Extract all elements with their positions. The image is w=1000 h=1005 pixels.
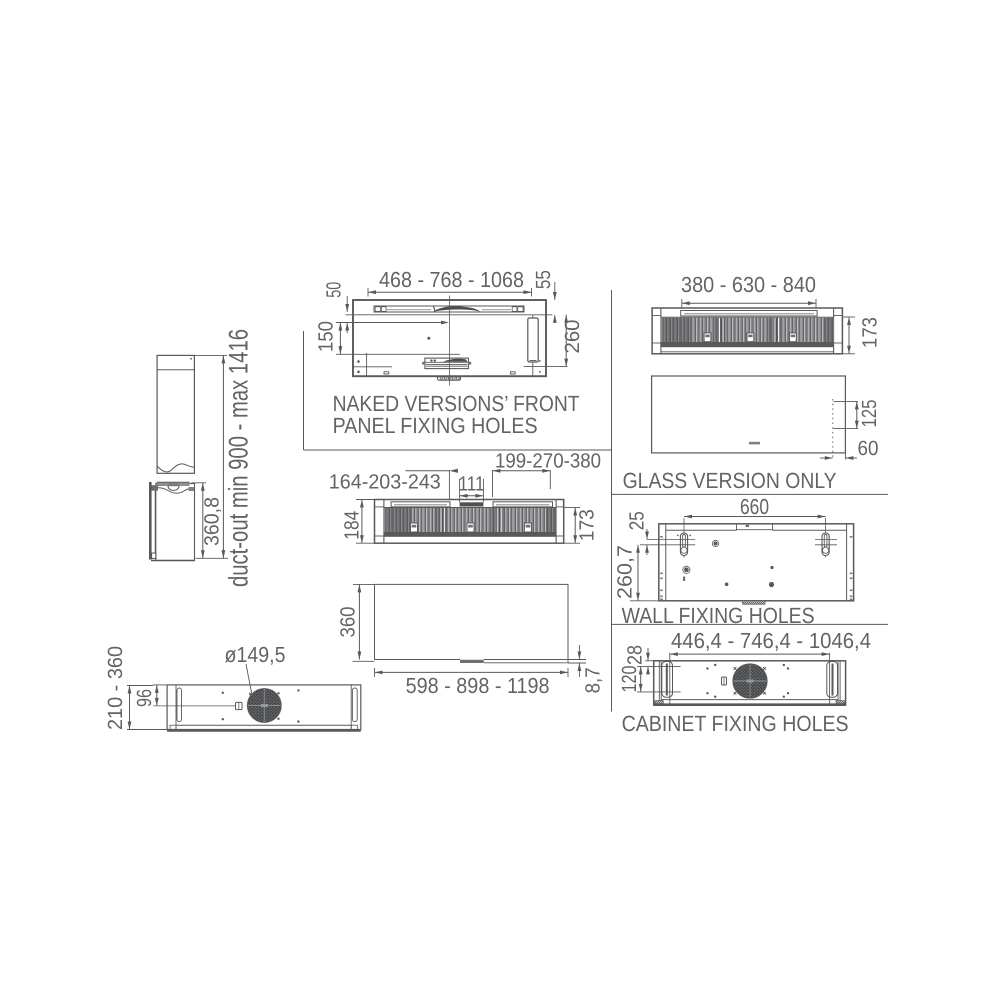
svg-text:GLASS VERSION ONLY: GLASS VERSION ONLY xyxy=(623,468,837,493)
svg-text:CABINET FIXING HOLES: CABINET FIXING HOLES xyxy=(622,711,849,736)
svg-text:446,4 - 746,4 - 1046,4: 446,4 - 746,4 - 1046,4 xyxy=(671,628,871,653)
svg-text:468 - 768 - 1068: 468 - 768 - 1068 xyxy=(379,267,524,292)
svg-text:173: 173 xyxy=(858,317,881,348)
svg-text:120: 120 xyxy=(618,666,641,693)
svg-text:598 - 898 - 1198: 598 - 898 - 1198 xyxy=(406,673,550,698)
svg-text:25: 25 xyxy=(625,511,648,530)
svg-text:210 - 360: 210 - 360 xyxy=(104,646,127,730)
svg-text:PANEL FIXING HOLES: PANEL FIXING HOLES xyxy=(333,413,538,438)
svg-text:50: 50 xyxy=(323,282,346,298)
svg-text:60: 60 xyxy=(858,437,879,460)
svg-text:8,7: 8,7 xyxy=(581,667,604,693)
svg-text:380 - 630 - 840: 380 - 630 - 840 xyxy=(681,272,816,297)
svg-text:28: 28 xyxy=(624,645,647,665)
svg-text:164-203-243: 164-203-243 xyxy=(329,470,441,493)
svg-text:96: 96 xyxy=(133,689,156,707)
svg-text:184: 184 xyxy=(341,511,364,540)
svg-text:360: 360 xyxy=(337,607,360,638)
svg-text:199-270-380: 199-270-380 xyxy=(495,450,601,473)
svg-text:360,8: 360,8 xyxy=(200,497,223,546)
svg-text:173: 173 xyxy=(576,509,599,541)
svg-text:ø149,5: ø149,5 xyxy=(225,642,286,667)
svg-text:55: 55 xyxy=(532,270,555,289)
svg-text:150: 150 xyxy=(315,321,338,352)
svg-text:duct-out min 900 - max 1416: duct-out min 900 - max 1416 xyxy=(224,329,254,587)
svg-text:260: 260 xyxy=(561,320,584,354)
svg-text:111: 111 xyxy=(459,472,485,495)
svg-text:WALL FIXING HOLES: WALL FIXING HOLES xyxy=(622,603,815,628)
svg-text:660: 660 xyxy=(740,494,769,519)
svg-text:260,7: 260,7 xyxy=(613,545,636,599)
svg-text:125: 125 xyxy=(858,400,881,428)
